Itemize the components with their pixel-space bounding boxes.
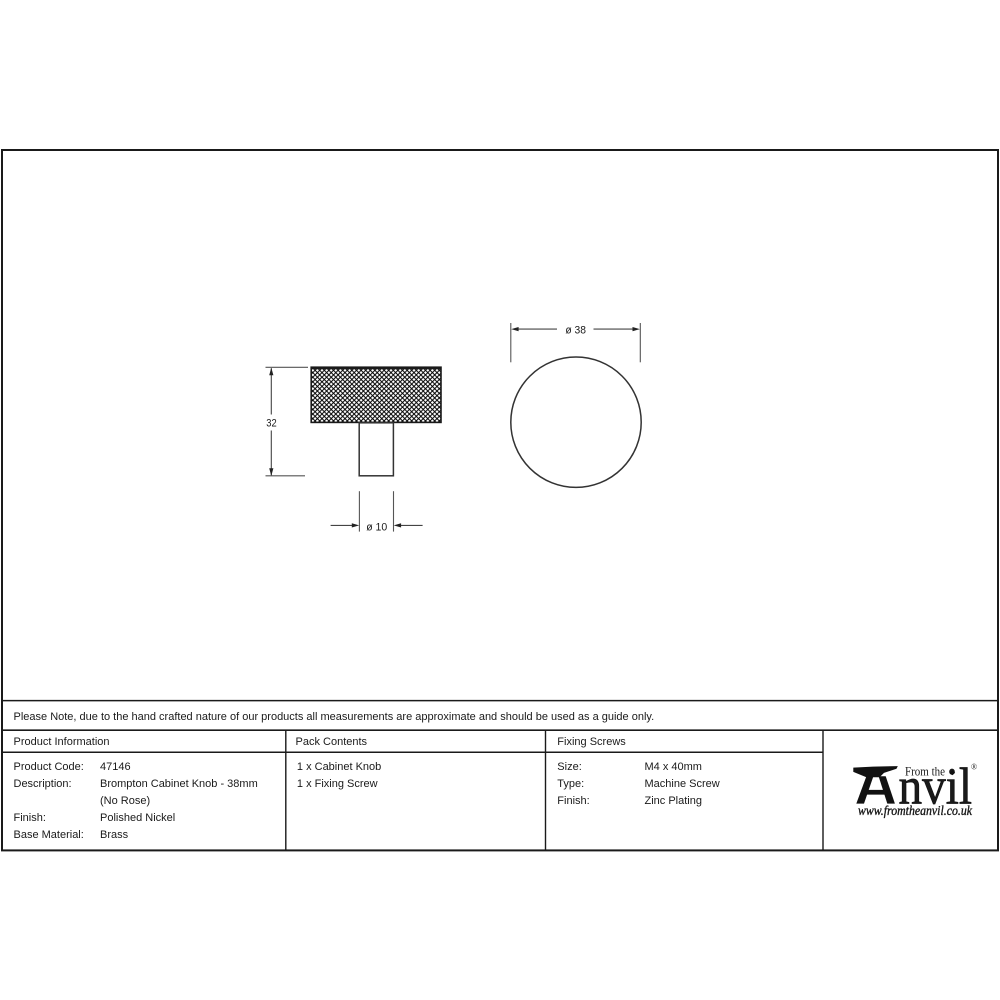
svg-text:Please Note, due to the hand c: Please Note, due to the hand crafted nat… bbox=[14, 711, 655, 723]
svg-text:®: ® bbox=[971, 762, 977, 771]
svg-text:Pack Contents: Pack Contents bbox=[296, 736, 368, 748]
svg-text:32: 32 bbox=[266, 417, 276, 429]
svg-text:M4 x 40mm: M4 x 40mm bbox=[645, 761, 702, 773]
svg-text:Finish:: Finish: bbox=[14, 812, 46, 824]
svg-text:From the: From the bbox=[905, 764, 945, 779]
svg-text:Zinc Plating: Zinc Plating bbox=[645, 795, 702, 807]
svg-text:Base Material:: Base Material: bbox=[14, 829, 84, 841]
svg-text:ø 38: ø 38 bbox=[565, 324, 586, 336]
svg-text:www.fromtheanvil.co.uk: www.fromtheanvil.co.uk bbox=[858, 803, 973, 818]
svg-text:Description:: Description: bbox=[14, 778, 72, 790]
svg-text:Polished Nickel: Polished Nickel bbox=[100, 812, 175, 824]
svg-text:Product Information: Product Information bbox=[14, 736, 110, 748]
svg-text:Brass: Brass bbox=[100, 829, 129, 841]
svg-text:Finish:: Finish: bbox=[557, 795, 589, 807]
svg-text:Brompton Cabinet Knob - 38mm: Brompton Cabinet Knob - 38mm bbox=[100, 778, 258, 790]
svg-text:Size:: Size: bbox=[557, 761, 581, 773]
svg-text:ø 10: ø 10 bbox=[366, 521, 387, 533]
svg-text:Fixing Screws: Fixing Screws bbox=[557, 736, 626, 748]
svg-text:(No Rose): (No Rose) bbox=[100, 795, 150, 807]
svg-text:Type:: Type: bbox=[557, 778, 584, 790]
svg-text:1 x Cabinet Knob: 1 x Cabinet Knob bbox=[297, 761, 381, 773]
svg-text:1 x Fixing Screw: 1 x Fixing Screw bbox=[297, 778, 378, 790]
svg-text:Machine Screw: Machine Screw bbox=[645, 778, 720, 790]
svg-text:47146: 47146 bbox=[100, 761, 131, 773]
svg-text:Product Code:: Product Code: bbox=[14, 761, 84, 773]
